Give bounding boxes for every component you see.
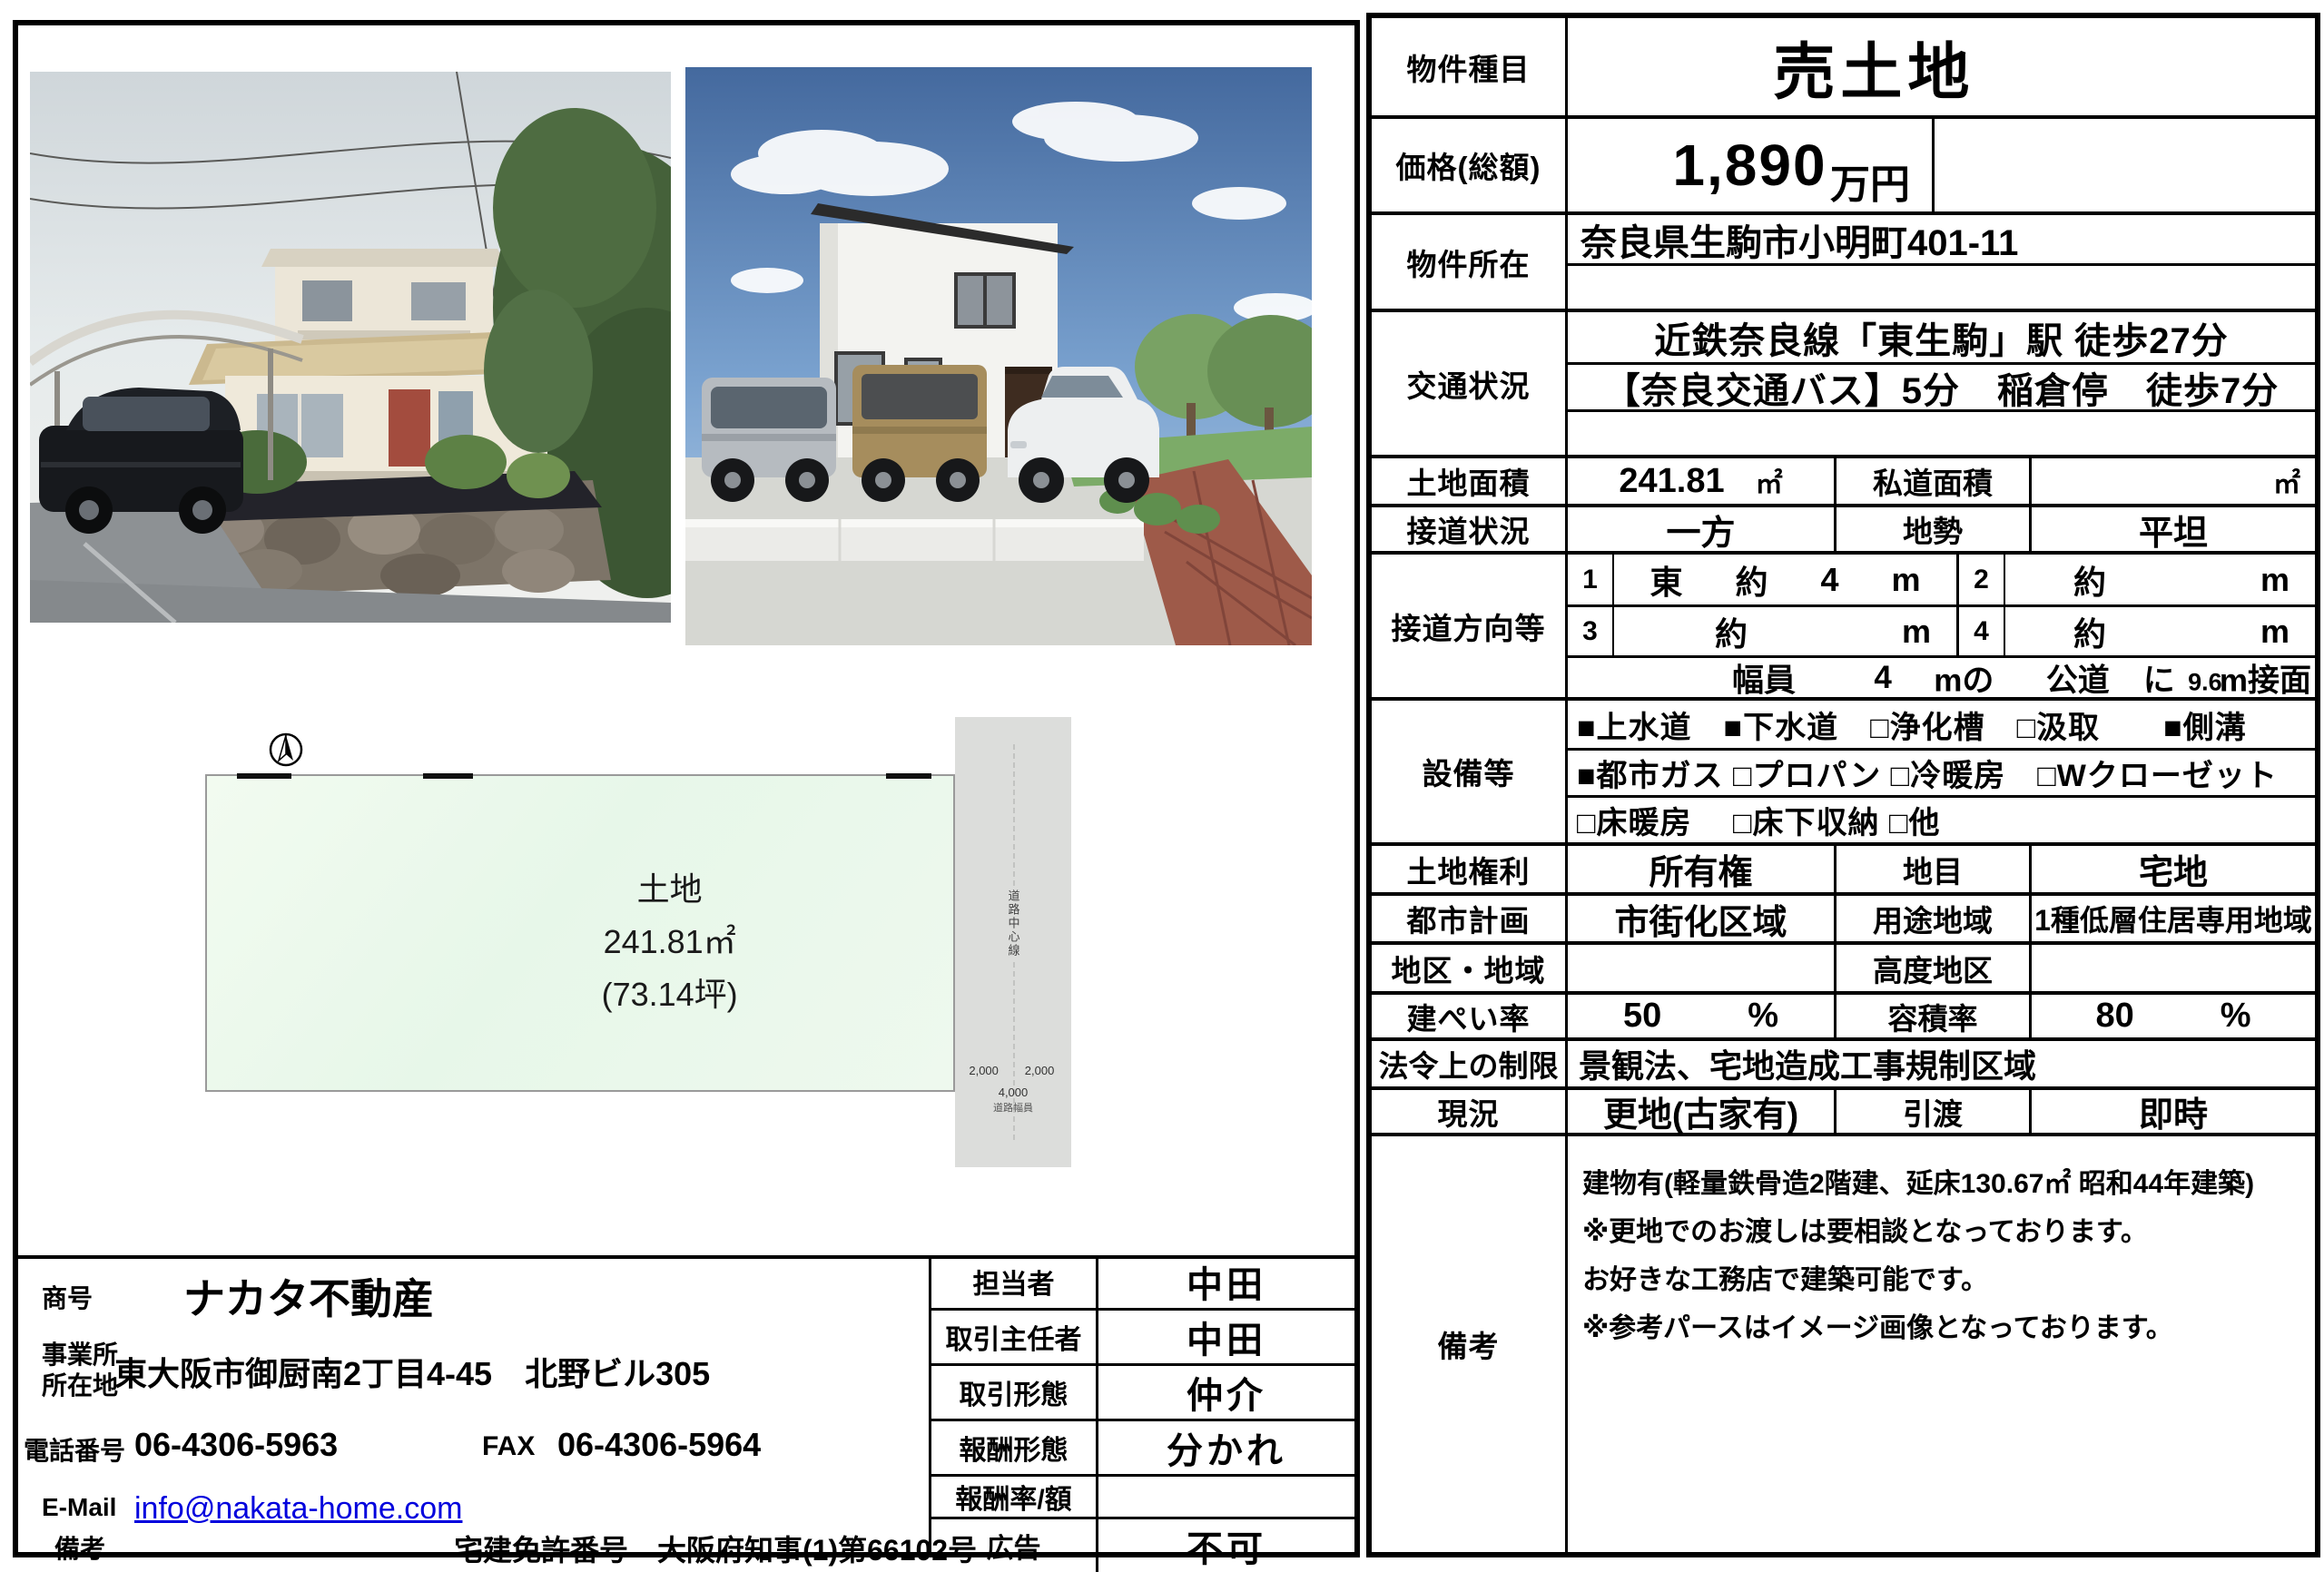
land-tsubo-text: (73.14坪) [446, 968, 893, 1021]
land-plot-diagram: 土地 241.81㎡ (73.14坪) [205, 774, 955, 1092]
city-planning-label: 都市計画 [1372, 896, 1568, 941]
row-current-status: 現況 更地(古家有) 引渡 即時 [1372, 1086, 2315, 1133]
private-road-cell: ㎡ [2032, 458, 2315, 504]
company-section: 商号 ナカタ不動産 事業所 所在地 東大阪市御厨南2丁目4-45 北野ビル305… [18, 1255, 1354, 1552]
handover-value: 即時 [2032, 1090, 2315, 1133]
row-location: 物件所在 奈良県生駒市小明町401-11 [1372, 211, 2315, 309]
table-row: 取引形態 仲介 [931, 1363, 1354, 1419]
coverage-cell: 50 % [1568, 995, 1837, 1037]
row-road-direction: 接道方向等 1 東 約 4 m 2 約 m [1372, 551, 2315, 697]
plot-boundary-tick [886, 773, 931, 779]
price-label: 価格(総額) [1372, 119, 1568, 211]
location-value: 奈良県生駒市小明町401-11 [1568, 215, 2315, 263]
road-dir1-unit: m [1892, 561, 1921, 599]
road-dir3-about: 約 [1715, 608, 1748, 655]
land-category-value: 宅地 [2032, 846, 2315, 892]
row-legal: 法令上の制限 景観法、宅地造成工事規制区域 [1372, 1037, 2315, 1086]
email-link[interactable]: info@nakata-home.com [134, 1491, 462, 1527]
price-extra-cell [1935, 119, 2315, 211]
table-row: 取引主任者 中田 [931, 1308, 1354, 1363]
height-district-value [2032, 945, 2315, 991]
handover-label: 引渡 [1837, 1090, 2032, 1133]
coverage-label: 建ぺい率 [1372, 995, 1568, 1037]
floor-ratio-unit: % [2221, 997, 2251, 1036]
road-dim-left: 2,000 [969, 1064, 999, 1077]
equipment-line3: □床暖房 □床下収納 □他 [1568, 795, 2315, 842]
zoning-value: 1種低層住居専用地域 [2032, 896, 2315, 941]
row-land-area: 土地面積 241.81 ㎡ 私道面積 ㎡ [1372, 455, 2315, 504]
row-property-type: 物件種目 売土地 [1372, 18, 2315, 115]
agent-label: 取引主任者 [931, 1311, 1098, 1363]
plot-boundary-tick [423, 773, 473, 779]
floor-ratio-value: 80 [2095, 997, 2133, 1036]
row-land-rights: 土地権利 所有権 地目 宅地 [1372, 842, 2315, 892]
road-width-line: 幅員 4 mの 公道 に 9.6 m接面 [1568, 655, 2315, 697]
location-label: 物件所在 [1372, 215, 1568, 309]
road-contact-label: 接道状況 [1372, 507, 1568, 551]
road-direction-line2: 3 約 m 4 約 m [1568, 604, 2315, 655]
price-cell: 1,890 万円 [1568, 119, 1935, 211]
rendering-image [685, 67, 1312, 645]
remarks-body: 建物有(軽量鉄骨造2階建、延床130.67㎡ 昭和44年建築) ※更地でのお渡し… [1568, 1136, 2315, 1552]
road-dir2-about: 約 [2073, 556, 2106, 604]
road-frontage-value: 9.6 [2188, 668, 2222, 696]
equipment-line1: ■上水道 ■下水道 □浄化槽 □汲取 ■側溝 [1568, 701, 2315, 748]
land-plot-text: 土地 241.81㎡ (73.14坪) [446, 863, 893, 1021]
land-area-unit: ㎡ [1756, 461, 1783, 501]
road-dir-num1: 1 [1568, 555, 1614, 604]
equipment-line2: ■都市ガス □プロパン □冷暖房 □Wクローゼット [1568, 748, 2315, 795]
company-name-value: ナカタ不動産 [183, 1266, 434, 1326]
table-row: 広告 不可 [931, 1517, 1354, 1572]
floor-ratio-cell: 80 % [2032, 995, 2315, 1037]
phone-value: 06-4306-5963 [134, 1426, 338, 1464]
road-dir-num2: 2 [1959, 555, 2005, 604]
agent-value: 中田 [1098, 1311, 1354, 1363]
land-label: 土地 [446, 863, 893, 916]
road-dir1-about: 約 [1735, 556, 1768, 604]
property-type-label: 物件種目 [1372, 18, 1568, 115]
road-dir1-length: 4 [1820, 561, 1838, 599]
road-dir-cell4: 約 m [2005, 607, 2315, 655]
legal-value: 景観法、宅地造成工事規制区域 [1568, 1041, 2315, 1086]
land-area-cell: 241.81 ㎡ [1568, 458, 1837, 504]
road-dir-num4: 4 [1959, 607, 2005, 655]
road-width-value: 4 [1874, 660, 1891, 696]
land-rights-label: 土地権利 [1372, 846, 1568, 892]
spec-table: 物件種目 売土地 価格(総額) 1,890 万円 物件所在 奈良県生駒市小明町4… [1366, 13, 2320, 1557]
agent-table: 担当者 中田 取引主任者 中田 取引形態 仲介 報酬形態 分かれ 報酬率/額 広… [929, 1255, 1354, 1556]
transport-empty-line [1568, 409, 2315, 455]
agent-value: 分かれ [1098, 1421, 1354, 1474]
remarks-line: ※更地でのお渡しは要相談となっております。 [1582, 1204, 2302, 1253]
road-type: 公道 [2046, 654, 2110, 701]
road-dir1-direction: 東 [1649, 556, 1682, 604]
road-frontage-unit: m接面 [2220, 654, 2311, 701]
property-type-value: 売土地 [1773, 22, 1974, 112]
remarks-line: お好きな工務店で建築可能です。 [1582, 1253, 2302, 1301]
road-dir2-unit: m [2260, 561, 2290, 599]
remarks-line: ※参考パースはイメージ画像となっております。 [1582, 1301, 2302, 1349]
zoning-label: 用途地域 [1837, 896, 2032, 941]
license-number: 宅建免許番号 大阪府知事(1)第66102号 [454, 1528, 977, 1569]
remarks-label: 備考 [1372, 1136, 1568, 1552]
road-contact-value: 一方 [1568, 507, 1837, 551]
agent-value: 仲介 [1098, 1366, 1354, 1419]
fax-label: FAX [482, 1431, 535, 1462]
road-direction-line1: 1 東 約 4 m 2 約 m [1568, 555, 2315, 604]
road-width-label: 幅員 [1732, 654, 1796, 701]
rendering-graphic [685, 67, 1312, 645]
city-planning-value: 市街化区域 [1568, 896, 1837, 941]
left-panel: 土地 241.81㎡ (73.14坪) 道路中心線 2,000 2,000 4,… [13, 20, 1360, 1557]
property-photo [30, 72, 671, 623]
transport-line1: 近鉄奈良線「東生駒」駅 徒歩27分 [1568, 312, 2315, 362]
road-dim-total: 4,000 [955, 1086, 1071, 1099]
land-area-value: 241.81 [1619, 462, 1724, 501]
plot-boundary-tick [237, 773, 291, 779]
agent-label: 取引形態 [931, 1366, 1098, 1419]
property-flyer-page: { "spec": { "type_label": "物件種目", "type_… [0, 0, 2324, 1568]
equipment-label: 設備等 [1372, 701, 1568, 842]
legal-label: 法令上の制限 [1372, 1041, 1568, 1086]
transport-label: 交通状況 [1372, 312, 1568, 455]
land-area-label: 土地面積 [1372, 458, 1568, 504]
coverage-unit: % [1748, 997, 1778, 1036]
road-dir-cell3: 約 m [1614, 607, 1959, 655]
floor-ratio-label: 容積率 [1837, 995, 2032, 1037]
land-category-label: 地目 [1837, 846, 2032, 892]
office-address-value: 東大阪市御厨南2丁目4-45 北野ビル305 [114, 1348, 710, 1395]
row-equipment: 設備等 ■上水道 ■下水道 □浄化槽 □汲取 ■側溝 ■都市ガス □プロパン □… [1372, 697, 2315, 842]
compass-icon [268, 732, 304, 768]
road-dir3-unit: m [1902, 613, 1931, 651]
company-note-label: 備考 [54, 1529, 105, 1566]
office-address-label-line2: 所在地 [42, 1366, 118, 1402]
road-direction-label: 接道方向等 [1372, 555, 1568, 697]
remarks-line: 建物有(軽量鉄骨造2階建、延床130.67㎡ 昭和44年建築) [1582, 1156, 2302, 1204]
property-type-cell: 売土地 [1568, 18, 2315, 115]
road-dir-cell2: 約 m [2005, 555, 2315, 604]
agent-value: 不可 [1098, 1519, 1354, 1572]
phone-label: 電話番号 [24, 1431, 125, 1468]
road-dir4-unit: m [2260, 613, 2290, 651]
agent-value [1098, 1477, 1354, 1517]
email-label: E-Mail [42, 1493, 116, 1522]
road-width-unit: mの [1934, 654, 1994, 701]
property-photo-graphic [30, 72, 671, 623]
row-transport: 交通状況 近鉄奈良線「東生駒」駅 徒歩27分 【奈良交通バス】5分 稲倉停 徒歩… [1372, 309, 2315, 455]
land-rights-value: 所有権 [1568, 846, 1837, 892]
agent-label: 報酬形態 [931, 1421, 1098, 1474]
road-centerline-label: 道路中心線 [1005, 888, 1022, 959]
table-row: 担当者 中田 [931, 1255, 1354, 1308]
table-row: 報酬率/額 [931, 1474, 1354, 1517]
coverage-value: 50 [1623, 997, 1661, 1036]
row-city-planning: 都市計画 市街化区域 用途地域 1種低層住居専用地域 [1372, 892, 2315, 941]
private-road-unit: ㎡ [2273, 461, 2300, 501]
terrain-label: 地勢 [1837, 507, 2032, 551]
road-strip-diagram: 道路中心線 2,000 2,000 4,000 道路幅員 [955, 717, 1071, 1167]
terrain-value: 平坦 [2032, 507, 2315, 551]
height-district-label: 高度地区 [1837, 945, 2032, 991]
road-dim-right: 2,000 [1025, 1064, 1055, 1077]
agent-label: 広告 [931, 1519, 1098, 1572]
current-status-label: 現況 [1372, 1090, 1568, 1133]
current-status-value: 更地(古家有) [1568, 1090, 1837, 1133]
row-remarks: 備考 建物有(軽量鉄骨造2階建、延床130.67㎡ 昭和44年建築) ※更地での… [1372, 1133, 2315, 1552]
road-dir4-about: 約 [2073, 608, 2106, 655]
road-particle: に [2143, 654, 2175, 701]
land-area-text: 241.81㎡ [446, 916, 893, 968]
row-price: 価格(総額) 1,890 万円 [1372, 115, 2315, 211]
private-road-label: 私道面積 [1837, 458, 2032, 504]
district-label: 地区・地域 [1372, 945, 1568, 991]
agent-value: 中田 [1098, 1255, 1354, 1308]
agent-label: 担当者 [931, 1255, 1098, 1308]
row-coverage: 建ぺい率 50 % 容積率 80 % [1372, 991, 2315, 1037]
transport-line2: 【奈良交通バス】5分 稲倉停 徒歩7分 [1568, 362, 2315, 409]
row-district: 地区・地域 高度地区 [1372, 941, 2315, 991]
road-dim-caption: 道路幅員 [955, 1100, 1071, 1115]
render-front-wall [685, 519, 1144, 561]
row-road-contact: 接道状況 一方 地勢 平坦 [1372, 504, 2315, 551]
company-name-label: 商号 [42, 1279, 93, 1315]
agent-label: 報酬率/額 [931, 1477, 1098, 1517]
road-dir-cell1: 東 約 4 m [1614, 555, 1959, 604]
road-dir-num3: 3 [1568, 607, 1614, 655]
location-empty-line [1568, 263, 2315, 309]
table-row: 報酬形態 分かれ [931, 1419, 1354, 1474]
price-unit: 万円 [1830, 152, 1910, 210]
district-value [1568, 945, 1837, 991]
fax-value: 06-4306-5964 [557, 1426, 761, 1464]
